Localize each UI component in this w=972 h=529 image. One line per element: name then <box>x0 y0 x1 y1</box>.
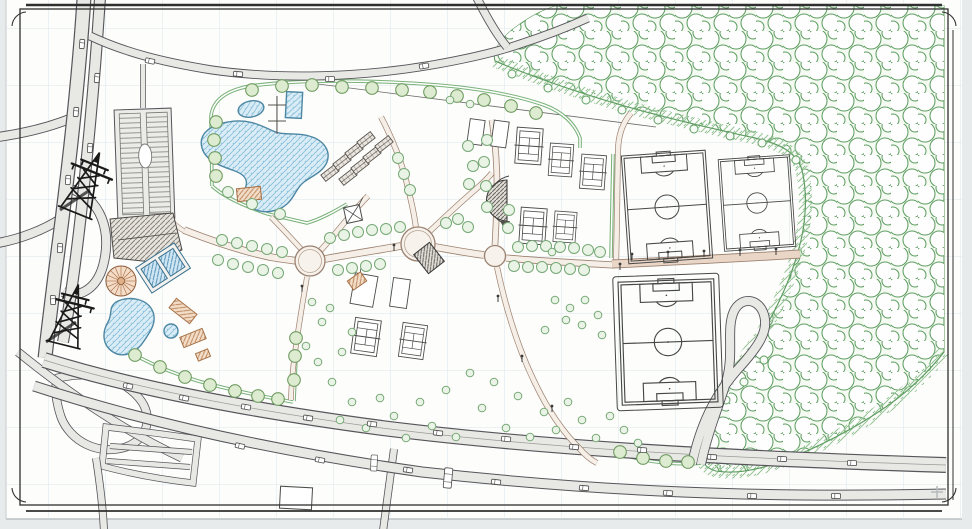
plaza-east <box>485 246 506 267</box>
carousel <box>106 266 136 296</box>
site-plan-drawing: Recreational park master plan — CAD site… <box>0 0 972 529</box>
truck <box>370 455 377 471</box>
boulevard-building <box>279 486 312 510</box>
parking-lot <box>114 108 175 220</box>
site-plan-page: Recreational park master plan — CAD site… <box>0 0 972 529</box>
lap-pool <box>285 92 302 119</box>
plaza-west <box>295 246 325 276</box>
round-pool <box>164 324 178 338</box>
bus <box>443 468 453 489</box>
parking-island <box>138 144 152 168</box>
